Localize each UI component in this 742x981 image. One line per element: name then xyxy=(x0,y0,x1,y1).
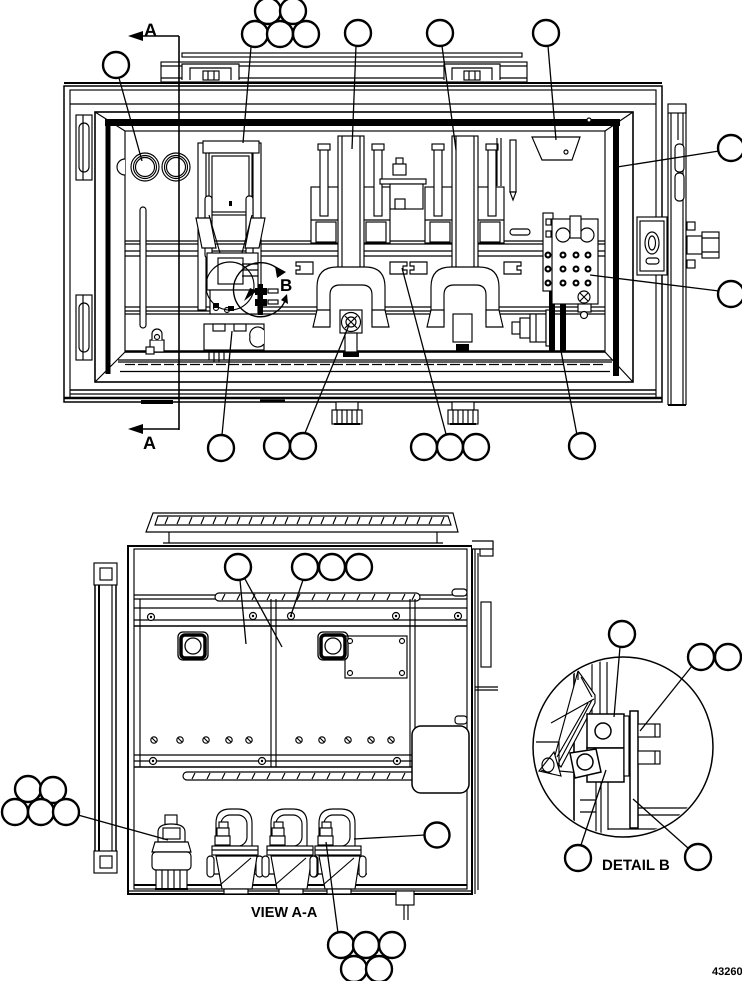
svg-text:43260: 43260 xyxy=(712,966,742,978)
svg-text:A: A xyxy=(143,433,156,453)
svg-text:VIEW A-A: VIEW A-A xyxy=(251,905,318,921)
svg-text:B: B xyxy=(280,276,292,295)
svg-text:DETAIL B: DETAIL B xyxy=(602,857,670,874)
svg-text:A: A xyxy=(144,20,157,40)
